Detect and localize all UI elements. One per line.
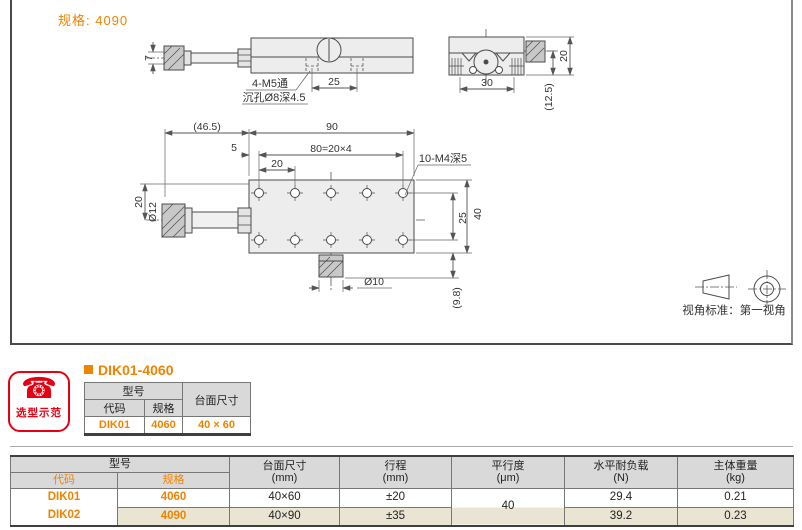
spec-header-weight-name: 主体重量 [678,460,793,473]
table-row: DIK02 4090 40×90 ±35 39.2 0.23 [11,507,794,526]
first-angle-symbols: 视角标准：第一视角 [682,270,786,317]
technical-drawing-svg: 7 4-M5通 沉孔Ø8深4.5 25 [12,0,791,343]
front-thread-callout: 4-M5通 [252,77,288,90]
spec-header-travel: 行程 (mm) [340,456,452,488]
example-block: DIK01-4060 型号 台面尺寸 代码 规格 DIK01 4060 40 ×… [84,361,251,436]
top-dim-length-label: 90 [326,121,338,133]
top-view: (46.5) 90 5 80=20×4 20 10-M4深5 Ø12 20 [133,121,484,309]
spec-header-size: 台面尺寸 (mm) [230,456,340,488]
spec-header-travel-unit: (mm) [340,472,451,485]
section-divider [10,446,793,447]
example-title-text: DIK01-4060 [98,362,174,378]
front-view: 7 4-M5通 沉孔Ø8深4.5 25 [143,38,413,104]
example-table: 型号 台面尺寸 代码 规格 DIK01 4060 40 × 60 [84,382,251,436]
spec-header-model: 型号 [11,456,230,472]
top-dim-shaft-dia-label: Ø12 [147,202,159,222]
spec-header-parallelism: 平行度 (μm) [452,456,565,488]
spec-header-size-unit: (mm) [230,472,339,485]
front-dim-height-label: 7 [143,55,155,61]
spec-header-parallelism-unit: (μm) [452,472,564,485]
top-dim-hole-span-label: 80=20×4 [310,143,352,155]
spec-header-code: 代码 [11,472,118,488]
example-code-value: DIK01 [85,417,145,435]
row-code: DIK01 [11,488,118,507]
side-view: 30 20 (12.5) [449,29,574,111]
front-dim-pitch-label: 25 [328,76,340,88]
badge-label: 选型示范 [10,405,68,420]
top-dim-hole-pitch-label: 20 [271,158,283,170]
view-note-label: 视角标准：第一视角 [682,303,786,317]
table-row: DIK01 4060 40×60 ±20 40 29.4 0.21 [11,488,794,507]
example-header-code: 代码 [85,400,145,417]
spec-header-load: 水平耐负载 (N) [565,456,678,488]
spec-table: 型号 台面尺寸 (mm) 行程 (mm) 平行度 (μm) 水平耐负载 (N) [10,455,794,527]
row-load: 29.4 [565,488,678,507]
row-weight: 0.23 [678,507,794,526]
drawing-panel: 规格: 4090 7 4-M [10,0,793,345]
row-code: DIK02 [11,507,118,526]
example-size-value: 40 × 60 [183,417,251,435]
example-header-size: 台面尺寸 [183,383,251,417]
row-spec: 4090 [118,507,230,526]
row-size: 40×90 [230,507,340,526]
row-parallelism-shared: 40 [452,488,565,526]
example-title: DIK01-4060 [84,361,251,378]
top-dim-edge-label: 5 [231,142,237,154]
square-bullet-icon [84,365,93,374]
phone-icon: ☎ [10,373,68,405]
row-weight: 0.21 [678,488,794,507]
front-counterbore-callout: 沉孔Ø8深4.5 [243,91,306,104]
example-header-model: 型号 [85,383,183,400]
spec-header-weight-unit: (kg) [678,472,793,485]
side-dim-width-label: 30 [481,77,493,89]
spec-header-size-name: 台面尺寸 [230,460,339,473]
row-size: 40×60 [230,488,340,507]
top-dim-ref-length-label: (46.5) [193,121,220,133]
catalog-page: { "colors": {"accent": "#f08300", "badge… [0,0,802,530]
side-dim-ref-label: (12.5) [543,83,555,110]
spec-header-weight: 主体重量 (kg) [678,456,794,488]
example-header-spec: 规格 [145,400,183,417]
row-load: 39.2 [565,507,678,526]
spec-table-section: 型号 台面尺寸 (mm) 行程 (mm) 平行度 (μm) 水平耐负载 (N) [10,455,793,527]
spec-header-load-unit: (N) [565,472,677,485]
side-dim-height-label: 20 [558,50,570,62]
row-spec: 4060 [118,488,230,507]
top-dim-half-width-label: 20 [133,196,145,208]
spec-header-parallelism-name: 平行度 [452,460,564,473]
row-travel: ±20 [340,488,452,507]
top-dim-knob-ref-label: (9.8) [451,287,463,309]
spec-header-load-name: 水平耐负载 [565,460,677,473]
top-dim-width-label: 40 [472,208,484,220]
top-tap-callout: 10-M4深5 [419,152,467,165]
spec-header-spec: 规格 [118,472,230,488]
selection-example-badge: ☎ 选型示范 [8,371,70,432]
example-spec-value: 4060 [145,417,183,435]
row-travel: ±35 [340,507,452,526]
spec-header-travel-name: 行程 [340,460,451,473]
